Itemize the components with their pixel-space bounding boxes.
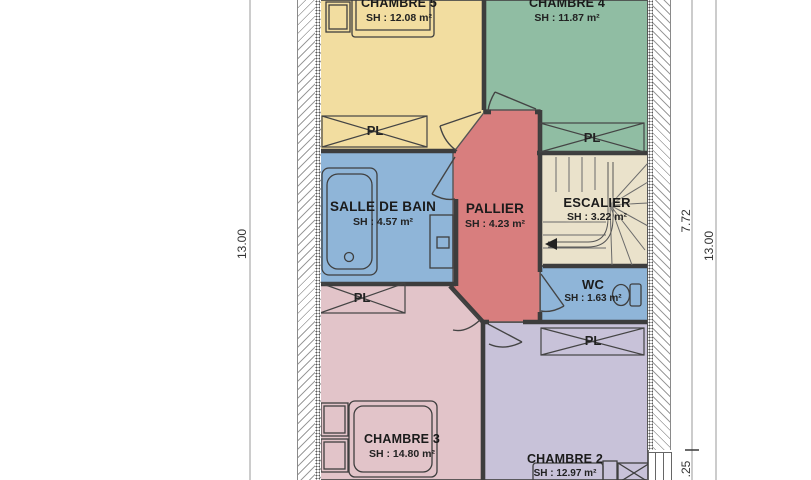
room-name: SALLE DE BAIN	[330, 199, 436, 216]
window-right	[648, 452, 672, 480]
room-area: SH : 12.08 m²	[361, 12, 437, 25]
room-name: PALLIER	[465, 201, 525, 218]
closet-label-chambre-5: PL	[367, 123, 384, 138]
label-chambre-2: CHAMBRE 2 SH : 12.97 m²	[527, 452, 603, 480]
room-name: CHAMBRE 2	[527, 452, 603, 468]
floor-plan: CHAMBRE 5 SH : 12.08 m² CHAMBRE 4 SH : 1…	[0, 0, 811, 480]
room-name: CHAMBRE 5	[361, 0, 437, 12]
room-area: SH : 14.80 m²	[364, 448, 440, 461]
dimension-label-right-outer: 13.00	[702, 231, 716, 261]
room-area: SH : 11.87 m²	[529, 12, 605, 25]
room-name: CHAMBRE 4	[529, 0, 605, 12]
label-escalier: ESCALIER SH : 3.22 m²	[563, 195, 630, 224]
dimension-label-bottom-right: .25	[679, 461, 693, 478]
room-name: WC	[564, 277, 621, 293]
closet-label-chambre-2: PL	[585, 333, 602, 348]
room-area: SH : 1.63 m²	[564, 293, 621, 306]
label-chambre-3: CHAMBRE 3 SH : 14.80 m²	[364, 432, 440, 461]
dimension-label-right-inner: 7.72	[679, 209, 693, 232]
label-wc: WC SH : 1.63 m²	[564, 277, 621, 306]
closet-label-chambre-3: PL	[354, 290, 371, 305]
closet-label-chambre-4: PL	[584, 130, 601, 145]
room-name: CHAMBRE 3	[364, 432, 440, 448]
room-area: SH : 3.22 m²	[563, 211, 630, 224]
label-chambre-5: CHAMBRE 5 SH : 12.08 m²	[361, 0, 437, 25]
label-chambre-4: CHAMBRE 4 SH : 11.87 m²	[529, 0, 605, 25]
label-pallier: PALLIER SH : 4.23 m²	[465, 201, 525, 231]
label-salle-de-bain: SALLE DE BAIN SH : 4.57 m²	[330, 199, 436, 229]
dimension-label-left: 13.00	[235, 229, 249, 259]
room-area: SH : 12.97 m²	[527, 468, 603, 480]
room-area: SH : 4.23 m²	[465, 218, 525, 231]
insulation-right	[648, 0, 653, 450]
room-name: ESCALIER	[563, 195, 630, 211]
insulation-left	[315, 0, 320, 480]
room-area: SH : 4.57 m²	[330, 216, 436, 229]
